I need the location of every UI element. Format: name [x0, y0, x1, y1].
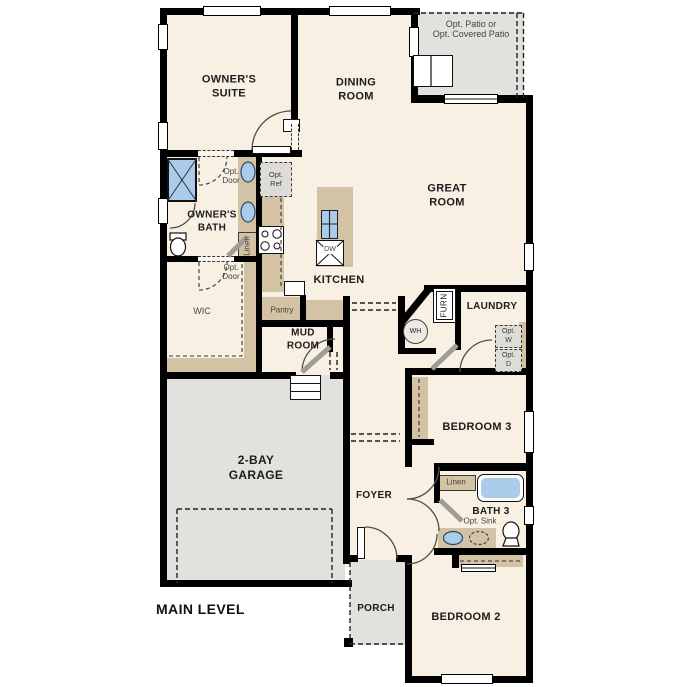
- wall: [160, 8, 167, 379]
- owners-suite-l1: OWNER'S: [202, 73, 256, 87]
- owners-suite-l2: SUITE: [202, 87, 256, 101]
- wall: [327, 327, 333, 352]
- water-heater: WH: [403, 319, 428, 344]
- opt-ref-box: Opt. Ref: [260, 162, 292, 197]
- window: [524, 506, 534, 525]
- furn-label: FURN: [440, 293, 449, 317]
- wall: [434, 463, 533, 471]
- wall: [160, 150, 198, 157]
- furnace-inner: FURN: [436, 291, 453, 320]
- dw-label: DW: [323, 246, 337, 254]
- wh-label: WH: [410, 328, 422, 335]
- great-l2: ROOM: [427, 196, 466, 210]
- wall: [291, 8, 298, 120]
- stove: [258, 226, 284, 254]
- opt-door-l2: Door: [222, 177, 239, 186]
- wall: [343, 296, 350, 564]
- wall: [398, 296, 405, 314]
- wall: [234, 256, 258, 262]
- bathtub: [477, 474, 524, 502]
- opt-dryer-box: Opt. D: [495, 349, 522, 372]
- linen-label: Linen: [244, 236, 253, 256]
- opt-w-label-l2: W: [505, 337, 512, 345]
- closet-slider-door: [461, 564, 496, 572]
- wall: [160, 580, 352, 587]
- room-label-foyer: FOYER: [356, 490, 392, 503]
- opt-w-label-l1: Opt.: [502, 328, 515, 336]
- opt-washer-box: Opt. W: [495, 325, 522, 348]
- sliding-glass-door: [444, 94, 498, 104]
- wall: [160, 256, 198, 262]
- room-label-mud: MUD ROOM: [287, 328, 319, 353]
- opt-door-gap: [198, 150, 234, 157]
- room-label-porch: PORCH: [357, 603, 395, 616]
- wall: [160, 372, 296, 379]
- room-label-laundry: LAUNDRY: [467, 301, 518, 314]
- bedroom3-closet-shelf: [412, 377, 428, 439]
- room-label-great: GREAT ROOM: [427, 182, 466, 210]
- window: [329, 6, 391, 16]
- opt-patio-l2: Opt. Covered Patio: [433, 30, 510, 40]
- window: [441, 674, 493, 684]
- room-label-kitchen: KITCHEN: [314, 274, 365, 288]
- room-label-bedroom3: BEDROOM 3: [442, 421, 511, 435]
- kitchen-bench: [306, 300, 344, 320]
- wall: [412, 439, 434, 445]
- window: [203, 6, 261, 16]
- dining-l2: ROOM: [336, 90, 376, 104]
- plan-title: MAIN LEVEL: [156, 601, 245, 617]
- porch-corner-block: [344, 638, 353, 647]
- garage-step: [290, 391, 321, 400]
- room-label-bedroom2: BEDROOM 2: [431, 611, 500, 625]
- room-label-owners-suite: OWNER'S SUITE: [202, 73, 256, 101]
- mud-l2: ROOM: [287, 340, 319, 353]
- wall: [434, 548, 533, 555]
- patio-fireplace: [413, 55, 453, 87]
- window: [524, 243, 534, 271]
- room-label-wic: WIC: [193, 307, 211, 317]
- window: [158, 122, 168, 150]
- bath3-counter: [438, 528, 496, 548]
- dining-l1: DINING: [336, 76, 376, 90]
- linen-label: Linen: [446, 479, 466, 488]
- shower: [167, 158, 197, 202]
- garage-l1: 2-BAY: [229, 453, 283, 468]
- opt-d-label-l1: Opt.: [502, 352, 515, 360]
- wall: [160, 375, 167, 587]
- island-sink: [321, 210, 338, 239]
- furnace: FURN: [433, 288, 456, 323]
- opt-ref-label-l2: Ref: [270, 180, 282, 189]
- room-label-owners-bath: OWNER'S BATH: [187, 210, 236, 235]
- great-l1: GREAT: [427, 182, 466, 196]
- wall: [452, 553, 459, 568]
- floor-plan: Opt. Ref WH FURN Opt. W Opt. D: [0, 0, 687, 687]
- wall: [398, 348, 436, 354]
- mud-l1: MUD: [287, 328, 319, 341]
- garage-l2: GARAGE: [229, 468, 283, 483]
- cased-opening: [291, 124, 299, 150]
- opt-door-label: Opt. Door: [222, 264, 239, 282]
- wall: [434, 471, 440, 503]
- room-label-pantry: Pantry: [270, 307, 293, 316]
- room-label-garage: 2-BAY GARAGE: [229, 453, 283, 483]
- opt-door-label: Opt. Door: [222, 168, 239, 186]
- wall: [526, 95, 533, 683]
- opt-door-gap: [198, 256, 234, 262]
- bathtub-water: [481, 478, 520, 498]
- wall: [343, 555, 358, 562]
- window: [158, 24, 168, 50]
- opt-sink-label: Opt. Sink: [464, 518, 497, 527]
- room-label-dining: DINING ROOM: [336, 76, 376, 104]
- opt-d-label-l2: D: [506, 361, 511, 369]
- wall: [405, 368, 412, 467]
- owners-bath-l1: OWNER'S: [187, 210, 236, 223]
- window: [524, 411, 534, 453]
- wall: [396, 555, 407, 562]
- owners-suite-door-leaf: [252, 146, 291, 154]
- owners-bath-counter: [238, 154, 258, 232]
- pantry-door: [284, 281, 305, 296]
- wall: [300, 295, 306, 325]
- window: [409, 27, 419, 57]
- wall: [405, 555, 412, 683]
- opt-patio-label: Opt. Patio or Opt. Covered Patio: [433, 20, 510, 40]
- owners-bath-l2: BATH: [187, 222, 236, 235]
- front-door-leaf: [357, 527, 365, 559]
- opt-door-l2: Door: [222, 273, 239, 282]
